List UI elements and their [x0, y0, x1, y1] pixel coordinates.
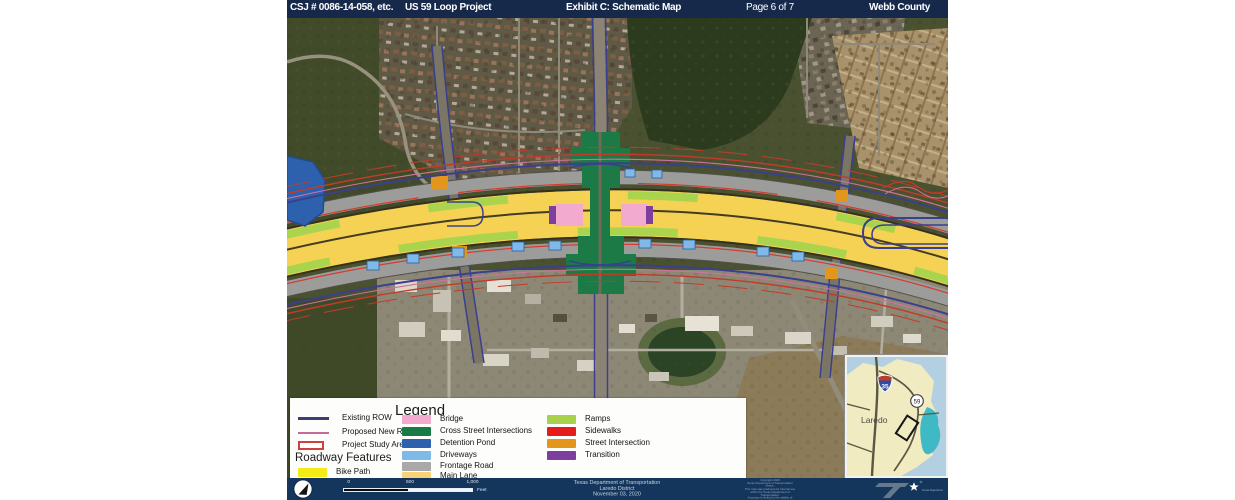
svg-text:35: 35	[881, 384, 889, 391]
street-intersection-1a	[431, 176, 448, 189]
study-area-swatch	[298, 441, 324, 450]
scale-tick-500: 500	[406, 480, 414, 485]
txdot-logo-text: Texas Department of Transportation	[922, 488, 943, 492]
us-59-shield: 59	[911, 395, 924, 408]
map-area: Legend Existing ROW Proposed New ROW Pro…	[287, 18, 948, 478]
agency-block: Texas Department of Transportation Lared…	[556, 480, 678, 497]
scale-tick-1000: 1,000	[467, 480, 479, 485]
driveways-swatch	[402, 451, 431, 460]
transition-right	[646, 206, 653, 224]
legend-proposed-row: Proposed New ROW	[298, 427, 398, 438]
street-intersection-3b	[825, 268, 838, 279]
csj-number: CSJ # 0086-14-058, etc.	[290, 2, 393, 13]
north-arrow-icon	[293, 479, 313, 499]
proposed-row-swatch	[298, 432, 329, 434]
ramps-swatch	[547, 415, 576, 424]
scale-bar-graphic	[343, 488, 473, 492]
inset-city-label: Laredo	[861, 415, 888, 425]
cross-street-swatch	[402, 427, 431, 436]
page: CSJ # 0086-14-058, etc. US 59 Loop Proje…	[0, 0, 1235, 500]
legend-existing-row: Existing ROW	[298, 413, 398, 424]
footer-bar: 0 500 1,000 Feet Texas Department of Tra…	[287, 478, 948, 500]
project-name: US 59 Loop Project	[405, 2, 491, 13]
bike-path-swatch	[298, 468, 327, 477]
legend-bike-path: Bike Path	[298, 467, 398, 478]
legend-panel: Legend Existing ROW Proposed New ROW Pro…	[290, 398, 746, 478]
scale-bar: 0 500 1,000 Feet	[343, 480, 493, 492]
svg-text:59: 59	[914, 400, 921, 406]
exhibit-title: Exhibit C: Schematic Map	[566, 2, 681, 13]
txdot-logo: Texas Department of Transportation	[875, 479, 943, 499]
street-intersection-3a	[836, 190, 848, 201]
sidewalks-swatch	[547, 427, 576, 436]
roadway-features-header: Roadway Features	[295, 452, 392, 464]
location-inset-map: 35 59 Laredo	[845, 355, 948, 478]
county-name: Webb County	[869, 2, 930, 13]
legend-study-area: Project Study Area	[298, 440, 398, 451]
page-number: Page 6 of 7	[746, 2, 794, 13]
bridge-left	[555, 204, 583, 226]
frontage-road-swatch	[402, 462, 431, 471]
bridge-swatch	[402, 415, 431, 424]
existing-row-swatch	[298, 417, 329, 420]
street-intersection-swatch	[547, 439, 576, 448]
agency-line-3: November 03, 2020	[556, 492, 678, 498]
exhibit-sheet: CSJ # 0086-14-058, etc. US 59 Loop Proje…	[287, 0, 948, 500]
fine-print-block: Copyright 2020 Texas Department of Trans…	[742, 479, 799, 500]
title-bar: CSJ # 0086-14-058, etc. US 59 Loop Proje…	[287, 0, 948, 18]
scale-unit: Feet	[477, 488, 487, 493]
bridge-right	[621, 204, 647, 226]
detention-pond-swatch	[402, 439, 431, 448]
transition-left	[549, 206, 556, 224]
transition-swatch	[547, 451, 576, 460]
scale-tick-0: 0	[347, 480, 350, 485]
